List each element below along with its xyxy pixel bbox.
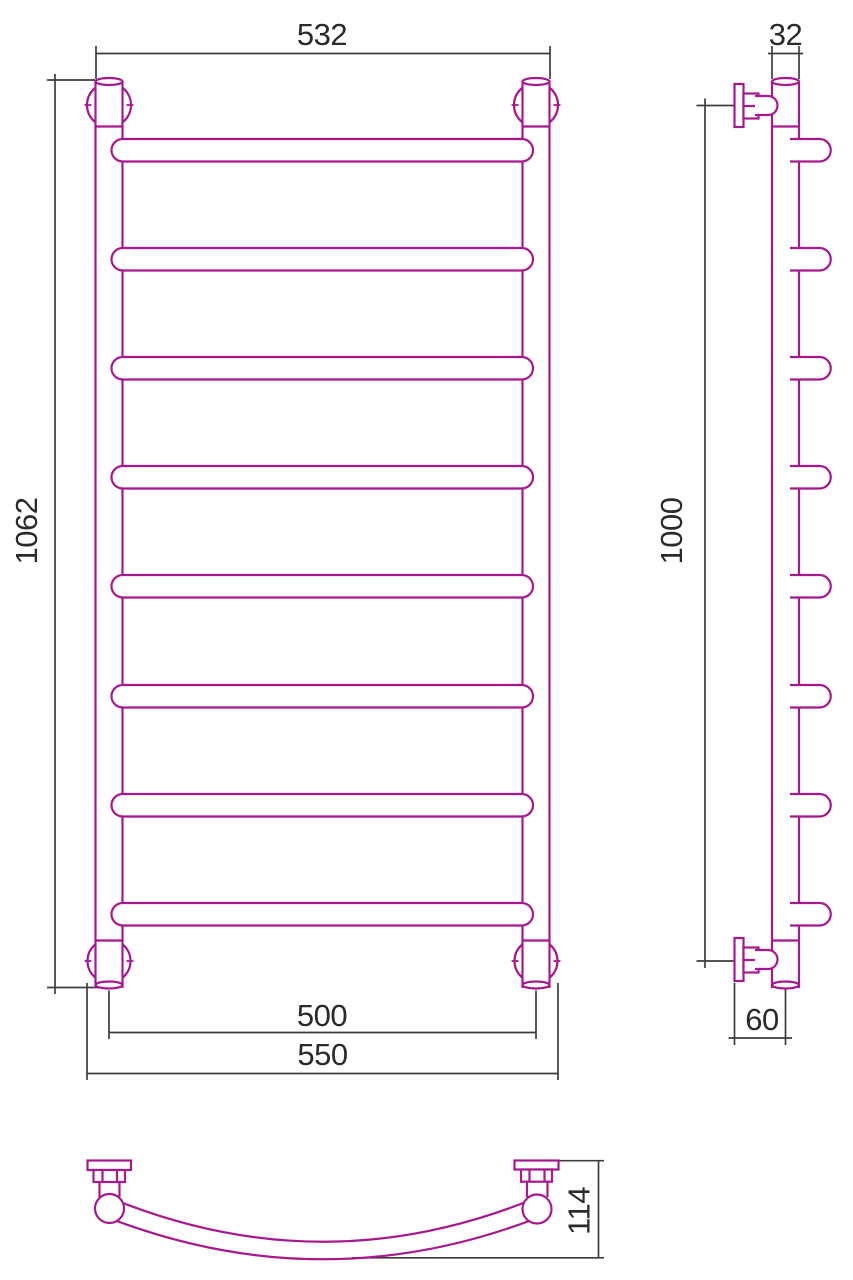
dim-label-wall-offset: 60 — [745, 1002, 779, 1037]
rung — [112, 248, 534, 271]
bracket-stem — [755, 950, 778, 969]
bracket-nut — [94, 1170, 126, 1182]
bracket-stem — [755, 96, 778, 115]
wall-flange — [88, 1161, 132, 1171]
tube-cap — [523, 982, 550, 989]
tube-cap — [96, 982, 123, 989]
tube-cap — [772, 982, 799, 989]
rung-stub — [790, 794, 831, 817]
dimension-lines — [47, 46, 803, 1258]
bracket-sphere — [523, 1195, 552, 1224]
dim-label-tube-width: 32 — [769, 17, 802, 52]
rung-stub — [790, 575, 831, 598]
wall-flange — [735, 938, 744, 981]
curved-rung-upper-edge — [122, 1203, 525, 1242]
bracket-nut — [521, 1170, 552, 1182]
rungs — [112, 139, 534, 926]
dim-1000-lines — [697, 99, 737, 969]
plan-bracket-left — [88, 1161, 132, 1224]
rung-stub — [790, 248, 831, 271]
dim-label-overall-width: 550 — [297, 1037, 347, 1072]
tube-cap — [772, 78, 799, 85]
rung — [112, 466, 534, 489]
rung-stub — [790, 685, 831, 708]
product-outline — [85, 78, 831, 1259]
wall-flange — [515, 1161, 559, 1170]
front-view — [85, 78, 561, 989]
dim-label-bracket-span: 1000 — [654, 497, 689, 564]
left-rail-fill — [96, 81, 123, 985]
side-tube-fill — [772, 81, 799, 985]
dim-label-top-width: 532 — [297, 17, 347, 52]
side-view — [735, 78, 831, 989]
top-view — [88, 1161, 559, 1260]
dim-label-depth: 114 — [562, 1187, 597, 1235]
right-rail-fill — [523, 81, 550, 985]
dimension-labels: 532 1062 500 550 32 1000 60 114 — [9, 17, 802, 1235]
rung-stub — [790, 466, 831, 489]
wall-flange — [735, 84, 744, 127]
tube-caps-front — [96, 78, 550, 989]
dim-label-height: 1062 — [9, 498, 44, 565]
technical-drawing-canvas: 532 1062 500 550 32 1000 60 114 — [0, 0, 853, 1280]
bracket-sphere — [95, 1194, 124, 1223]
rung-stub — [790, 139, 831, 162]
rung-stub — [790, 903, 831, 926]
plan-bracket-right — [515, 1161, 559, 1224]
rung — [112, 357, 534, 380]
rung-stub — [790, 357, 831, 380]
towel-rail-technical-drawing: 532 1062 500 550 32 1000 60 114 — [0, 0, 853, 1280]
sphere-centre-ticks — [85, 105, 561, 961]
dim-label-rail-centers: 500 — [297, 998, 347, 1033]
rung — [112, 575, 534, 598]
curved-rung-lower-edge — [116, 1221, 531, 1260]
tube-cap — [523, 78, 550, 85]
rung — [112, 903, 534, 926]
rung — [112, 139, 534, 162]
tube-cap — [96, 78, 123, 85]
rung — [112, 685, 534, 708]
rung — [112, 794, 534, 817]
